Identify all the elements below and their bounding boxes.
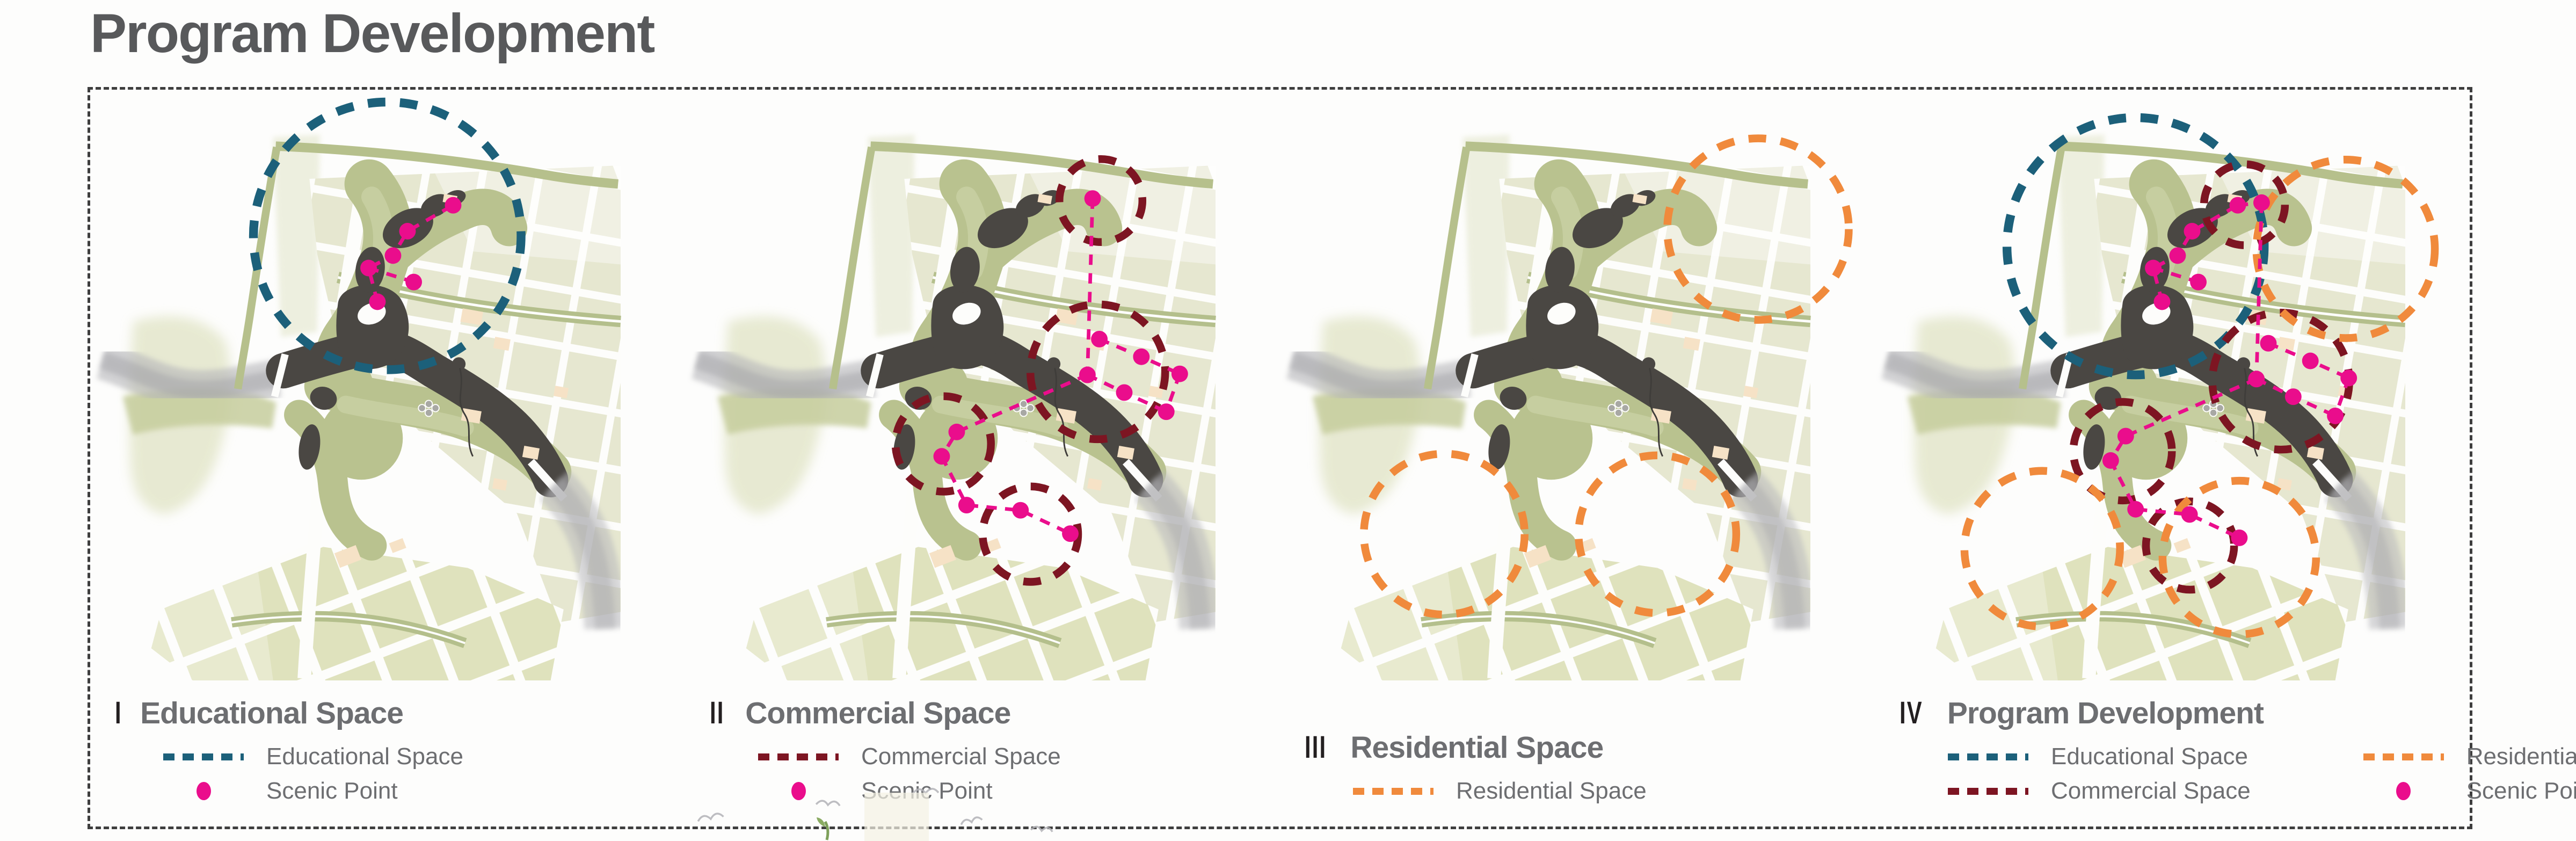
scenic-point: [2117, 428, 2134, 445]
scenic-point: [2231, 530, 2247, 546]
panel-educational-space: I Educational Space Educational Space Sc…: [90, 90, 685, 827]
legend-header: IV Program Development: [1900, 695, 2576, 731]
panel-numeral: I: [115, 695, 122, 731]
panel-numeral: III: [1305, 729, 1327, 765]
dashed-line-swatch: [758, 753, 839, 760]
legend-rows: Educational Space Scenic Point: [163, 743, 463, 805]
legend-label: Scenic Point: [2466, 778, 2576, 804]
scenic-point: [2230, 197, 2246, 214]
scenic-point: [1158, 403, 1175, 420]
dashed-line-swatch: [1948, 753, 2028, 760]
scenic-point: [384, 247, 401, 264]
legend-educational: I Educational Space Educational Space Sc…: [115, 695, 463, 805]
scenic-point: [1079, 367, 1096, 383]
legend-row: Scenic Point: [2363, 777, 2576, 805]
scenic-point-icon: [2396, 782, 2411, 800]
legend-label: Scenic Point: [266, 778, 398, 804]
scenic-point-swatch: [2363, 782, 2444, 800]
panel-numeral: IV: [1900, 695, 1923, 731]
legend-commercial: II Commercial Space Commercial Space Sce…: [710, 695, 1061, 805]
scenic-point-swatch: [163, 782, 244, 800]
scenic-point: [1012, 502, 1029, 519]
panel-residential-space: III Residential Space Residential Space: [1280, 90, 1875, 827]
scenic-point: [1062, 525, 1079, 542]
scenic-point-icon: [197, 782, 211, 800]
panel-title: Commercial Space: [745, 695, 1010, 731]
scenic-point: [360, 260, 377, 277]
dashed-line-swatch: [163, 753, 244, 760]
scenic-point-swatch: [758, 782, 839, 800]
panel-title: Residential Space: [1350, 730, 1603, 765]
dashed-line-swatch: [1353, 788, 1433, 795]
dashed-line-swatch: [1948, 788, 2028, 795]
legend-residential: III Residential Space Residential Space: [1305, 729, 1647, 805]
legend-program-development: IV Program Development Educational Space…: [1900, 695, 2576, 805]
dashed-line-swatch: [2363, 753, 2444, 760]
scenic-point: [2340, 369, 2357, 386]
scenic-point: [1091, 331, 1108, 347]
panel-commercial-space: II Commercial Space Commercial Space Sce…: [685, 90, 1280, 827]
panel-program-development: IV Program Development Educational Space…: [1875, 90, 2470, 827]
legend-row: Scenic Point: [758, 777, 1061, 805]
scenic-point: [2127, 501, 2144, 518]
scenic-point: [2102, 452, 2119, 469]
scenic-point: [2169, 247, 2186, 264]
site-map-commercial: [697, 98, 1216, 685]
scenic-point: [399, 223, 416, 240]
legend-row: Scenic Point: [163, 777, 463, 805]
legend-row: Residential Space: [2363, 743, 2576, 771]
scenic-point: [445, 197, 462, 214]
scenic-point: [933, 448, 950, 465]
basemap-artwork: [102, 135, 621, 680]
panel-title: Educational Space: [140, 695, 403, 731]
scenic-point: [2253, 194, 2270, 211]
legend-label: Educational Space: [266, 743, 463, 770]
scenic-point: [2302, 353, 2319, 369]
legend-label: Residential Space: [1456, 778, 1647, 804]
scenic-point: [405, 274, 422, 291]
scenic-point: [1116, 384, 1133, 401]
basemap-artwork: [1292, 135, 1810, 680]
scenic-point: [2190, 274, 2207, 291]
legend-label: Commercial Space: [861, 743, 1061, 770]
legend-row: Commercial Space: [1948, 777, 2251, 805]
panel-numeral: II: [710, 695, 725, 731]
legend-label: Scenic Point: [861, 778, 993, 804]
scenic-point: [1085, 190, 1101, 207]
legend-label: Commercial Space: [2051, 778, 2251, 804]
legend-rows: Residential Space: [1353, 777, 1647, 805]
legend-label: Residential Space: [2466, 743, 2576, 770]
diagram-frame: I Educational Space Educational Space Sc…: [88, 87, 2472, 829]
legend-row: Educational Space: [163, 743, 463, 771]
legend-row: Residential Space: [1353, 777, 1647, 805]
scenic-point: [2327, 408, 2344, 424]
site-map-program-development: [1887, 98, 2405, 685]
legend-header: II Commercial Space: [710, 695, 1061, 731]
scenic-point: [2153, 293, 2170, 310]
page-title: Program Development: [90, 2, 654, 65]
site-map-residential: [1292, 98, 1810, 685]
legend-label: Educational Space: [2051, 743, 2248, 770]
scenic-point: [1171, 366, 1188, 382]
scenic-point: [2248, 371, 2265, 387]
scenic-point: [2260, 335, 2277, 352]
legend-rows: Commercial Space Scenic Point: [758, 743, 1061, 805]
legend-header: I Educational Space: [115, 695, 463, 731]
scenic-point-icon: [791, 782, 806, 800]
panel-title: Program Development: [1947, 695, 2264, 731]
site-map-educational: [102, 98, 621, 685]
legend-row: Commercial Space: [758, 743, 1061, 771]
scenic-point: [2184, 223, 2201, 240]
legend-header: III Residential Space: [1305, 729, 1647, 765]
scenic-point: [1133, 349, 1149, 365]
scenic-point: [949, 424, 965, 440]
scenic-point: [2181, 506, 2198, 523]
scenic-point: [369, 293, 385, 310]
basemap-artwork: [1887, 135, 2405, 680]
scenic-point: [958, 497, 975, 513]
legend-row: Educational Space: [1948, 743, 2251, 771]
scenic-point: [2145, 260, 2162, 277]
scenic-point: [2285, 388, 2302, 405]
legend-rows: Educational Space Commercial Space Resid…: [1948, 743, 2576, 805]
